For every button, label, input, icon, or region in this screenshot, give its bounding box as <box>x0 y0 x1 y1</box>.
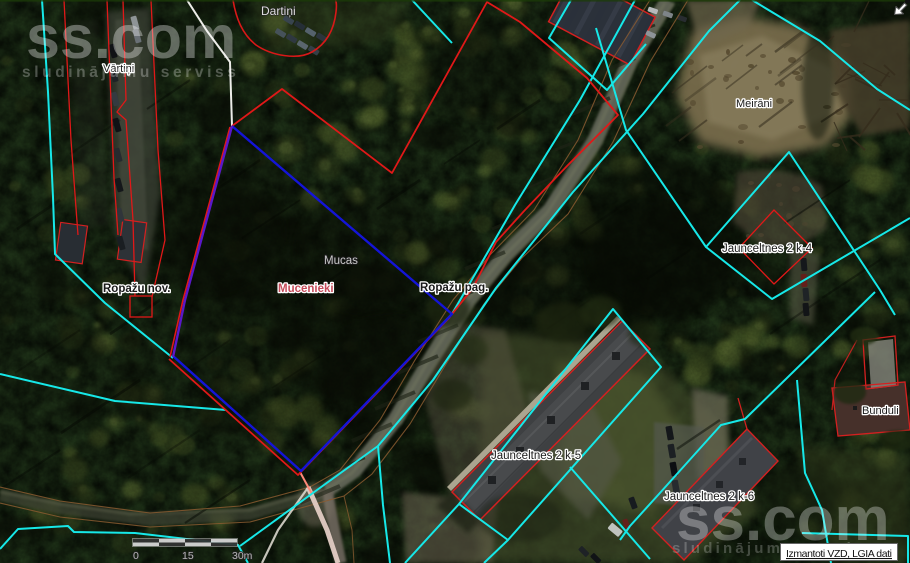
svg-text:Bunduli: Bunduli <box>862 405 899 417</box>
svg-text:Ropažu nov.: Ropažu nov. <box>103 283 171 295</box>
svg-text:15: 15 <box>182 550 194 562</box>
svg-text:Jaunceltnes 2 k-4: Jaunceltnes 2 k-4 <box>722 243 813 255</box>
svg-text:Meirāni: Meirāni <box>736 98 772 110</box>
svg-text:Mucas: Mucas <box>324 255 358 267</box>
svg-text:ss.com: ss.com <box>26 3 236 71</box>
svg-text:Izmantoti VZD, LGIA dati: Izmantoti VZD, LGIA dati <box>786 548 892 560</box>
svg-text:Ropažu pag.: Ropažu pag. <box>420 282 488 294</box>
svg-text:sludinājumu serviss: sludinājumu serviss <box>22 64 239 81</box>
svg-text:0: 0 <box>133 550 139 562</box>
svg-text:Mucenieki: Mucenieki <box>278 283 334 295</box>
svg-text:30m: 30m <box>232 550 253 562</box>
svg-text:Jaunceltnes 2 k-5: Jaunceltnes 2 k-5 <box>491 450 581 462</box>
svg-text:Dartiņi: Dartiņi <box>261 4 296 18</box>
